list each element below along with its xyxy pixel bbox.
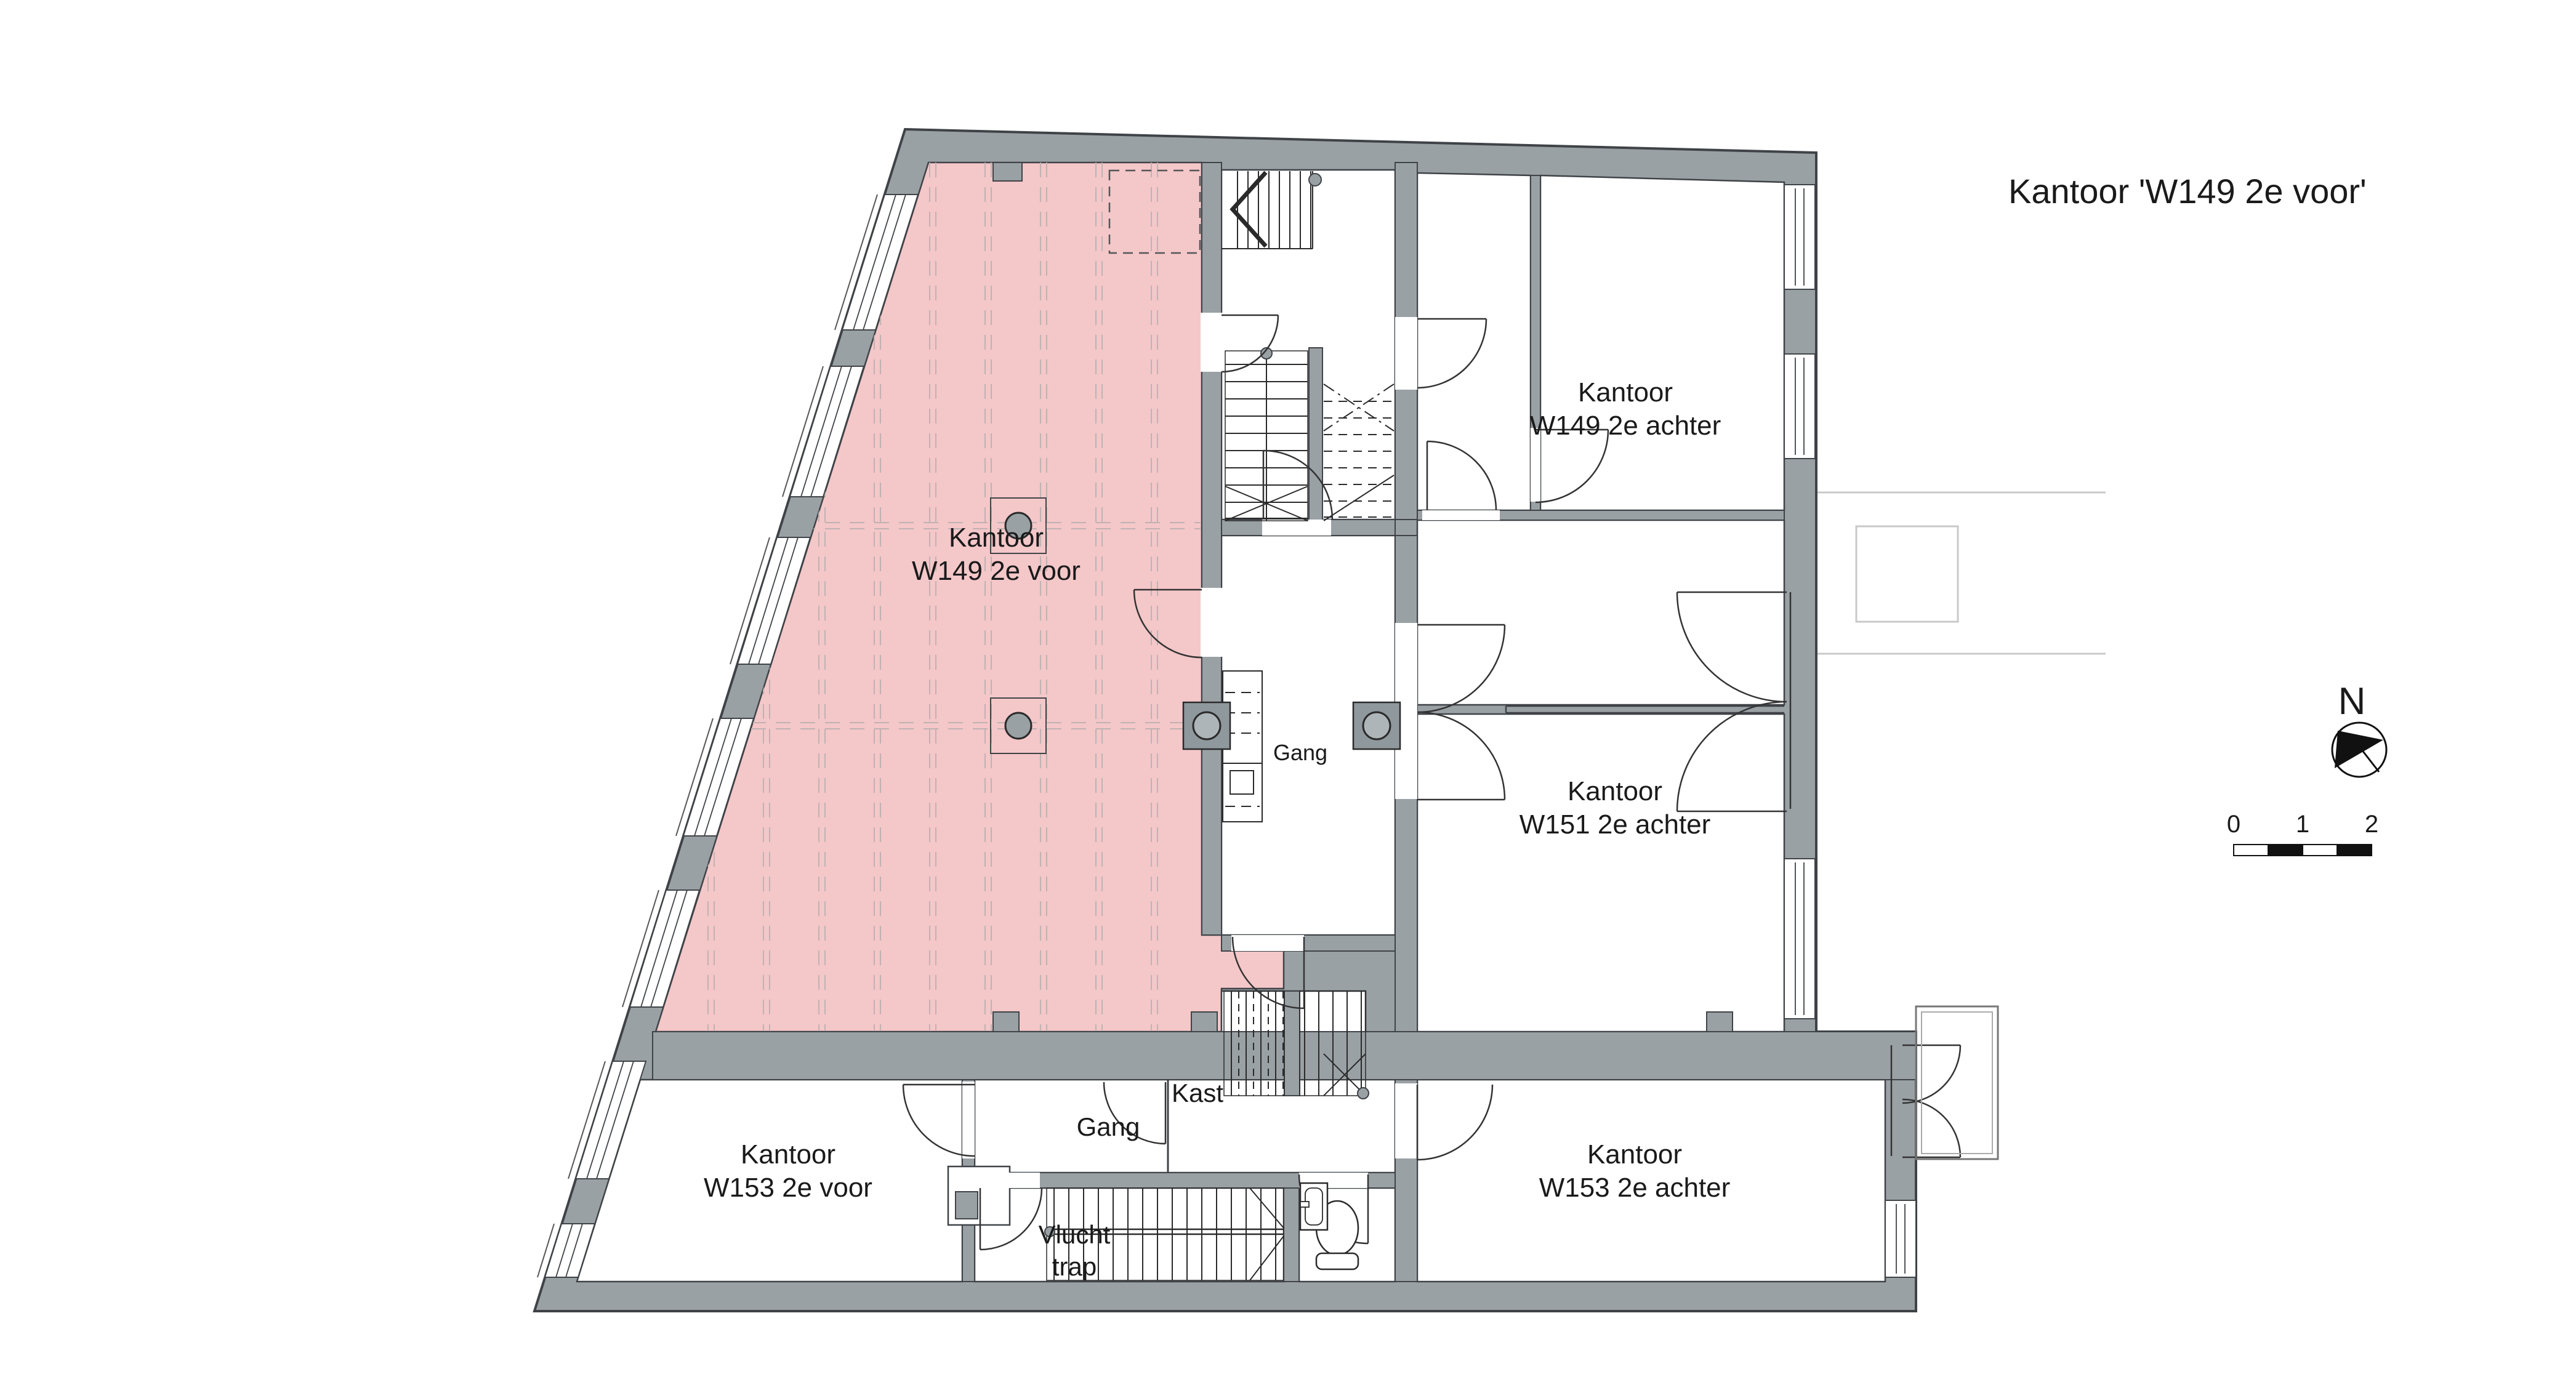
corridor-strip bbox=[1417, 520, 1784, 705]
column-wall-1 bbox=[1183, 702, 1230, 749]
scale-1: 1 bbox=[2296, 811, 2309, 838]
north-tail bbox=[2362, 750, 2379, 772]
column-wall-2 bbox=[1353, 702, 1400, 749]
room-w149-2e-voor bbox=[656, 163, 1284, 1032]
label-w151achter-line2: W151 2e achter bbox=[1519, 809, 1711, 840]
label-w153achter-line2: W153 2e achter bbox=[1539, 1173, 1731, 1203]
window-right-1 bbox=[1784, 185, 1815, 289]
north-pointer-icon bbox=[2335, 731, 2383, 768]
opening-gang-south bbox=[1231, 935, 1304, 951]
page-title: Kantoor 'W149 2e voor' bbox=[2008, 172, 2367, 211]
faint-skylight-rect bbox=[1856, 526, 1958, 622]
opening-hall-south bbox=[1422, 510, 1500, 520]
window-right-4 bbox=[1885, 1200, 1916, 1277]
label-kast: Kast bbox=[1172, 1078, 1223, 1107]
wall-stair-mid bbox=[1309, 348, 1322, 523]
scale-2: 2 bbox=[2365, 811, 2378, 838]
opening-pink-door bbox=[1201, 588, 1223, 657]
label-w149voor-line2: W149 2e voor bbox=[912, 556, 1081, 586]
label-w149achter-line2: W149 2e achter bbox=[1530, 411, 1721, 441]
opening-pink-upper bbox=[1201, 313, 1223, 372]
label-gang-south: Gang bbox=[1077, 1112, 1140, 1141]
label-gang-center: Gang bbox=[1273, 740, 1327, 765]
label-vlucht-line2: trap bbox=[1052, 1252, 1097, 1281]
wall-pink-east bbox=[1202, 163, 1222, 935]
label-w153achter-line1: Kantoor bbox=[1587, 1139, 1682, 1170]
label-w153voor-line2: W153 2e voor bbox=[704, 1173, 872, 1203]
room-w151-2e-achter bbox=[1417, 714, 1784, 1032]
wall-tab-band-1 bbox=[993, 1012, 1019, 1032]
stair-post-dot-3 bbox=[1358, 1088, 1369, 1099]
floorplan-canvas: Kantoor W149 2e voor Kantoor W149 2e ach… bbox=[0, 0, 2576, 1385]
faint-exterior-outline bbox=[1816, 492, 2106, 654]
label-w149voor-line1: Kantoor bbox=[949, 523, 1044, 553]
washbasin-icon bbox=[1300, 1183, 1327, 1230]
scale-seg-3 bbox=[2303, 845, 2337, 856]
stair-post-dot-1 bbox=[1309, 174, 1321, 186]
scale-bar: 0 1 2 bbox=[2227, 811, 2378, 856]
floorplan-page: Kantoor W149 2e voor Kantoor W149 2e ach… bbox=[0, 0, 2576, 1385]
label-w151achter-line1: Kantoor bbox=[1568, 776, 1662, 806]
window-right-3 bbox=[1784, 859, 1815, 1019]
wall-vlucht-wc bbox=[1284, 1188, 1299, 1282]
scale-seg-2 bbox=[2268, 845, 2303, 856]
scale-0: 0 bbox=[2227, 811, 2240, 838]
north-label: N bbox=[2338, 680, 2366, 723]
wall-tab-band-2 bbox=[1191, 1012, 1217, 1032]
wall-tab-band-3 bbox=[1707, 1012, 1733, 1032]
window-right-2 bbox=[1784, 354, 1815, 459]
opening-stairwell-east bbox=[1395, 317, 1417, 390]
north-arrow: N bbox=[2332, 680, 2386, 777]
opening-w153voor bbox=[962, 1082, 975, 1158]
label-vlucht-line1: Vlucht bbox=[1039, 1220, 1111, 1249]
label-w153voor-line1: Kantoor bbox=[741, 1139, 835, 1170]
wall-notch-top bbox=[993, 163, 1022, 181]
opening-vlucht bbox=[978, 1173, 1040, 1188]
room-w149-2e-achter bbox=[1540, 175, 1784, 510]
scale-seg-4 bbox=[2337, 845, 2372, 856]
opening-w153achter bbox=[1395, 1083, 1417, 1158]
opening-stairwell-south bbox=[1262, 520, 1331, 536]
label-w149achter-line1: Kantoor bbox=[1578, 377, 1673, 407]
scale-seg-1 bbox=[2234, 845, 2268, 856]
